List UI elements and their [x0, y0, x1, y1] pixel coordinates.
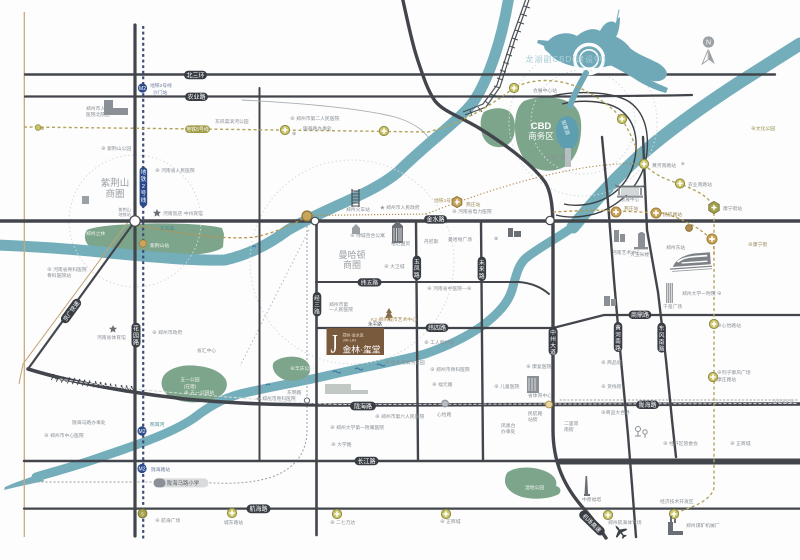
- svg-text:⊕ 康复医院: ⊕ 康复医院: [526, 363, 552, 370]
- svg-text:⊕ 郑州市第二人民医院: ⊕ 郑州市第二人民医院: [290, 115, 340, 122]
- svg-text:地铁站: 地铁站: [118, 211, 131, 218]
- svg-text:⊕ 工人新村站: ⊕ 工人新村站: [424, 339, 454, 346]
- svg-text:金林·玺堂: 金林·玺堂: [342, 343, 380, 354]
- svg-text:长江路: 长江路: [357, 457, 375, 465]
- svg-text:河南饭店·中州宾馆: 河南饭店·中州宾馆: [163, 210, 203, 217]
- svg-text:郑州市人民: 郑州市人民: [86, 105, 110, 112]
- svg-text:M2: M2: [139, 86, 146, 92]
- svg-text:⊕ 商品城: ⊕ 商品城: [601, 359, 622, 366]
- svg-text:地铁2号线: 地铁2号线: [150, 82, 172, 89]
- svg-text:⊕ 河南省骨科医院: ⊕ 河南省骨科医院: [47, 266, 87, 273]
- svg-text:地铁1号线: 地铁1号线: [434, 197, 456, 204]
- svg-text:熊耳河: 熊耳河: [150, 421, 165, 428]
- svg-text:⊕ 经开区管委会: ⊕ 经开区管委会: [663, 440, 698, 447]
- svg-text:⊕商品大世界: ⊕商品大世界: [601, 409, 630, 416]
- svg-text:郑州市第: 郑州市第: [329, 301, 348, 308]
- svg-text:东风渠: 东风渠: [160, 225, 175, 232]
- svg-text:⊕ 五一公园站: ⊕ 五一公园站: [184, 389, 214, 396]
- svg-text:M2: M2: [139, 467, 146, 473]
- svg-text:城东路站: 城东路站: [224, 519, 243, 526]
- svg-text:· 国基路办事处: · 国基路办事处: [300, 125, 332, 132]
- svg-text:地铁5号线: 地铁5号线: [186, 126, 209, 133]
- svg-text:⊕ 航海广场: ⊕ 航海广场: [155, 517, 181, 524]
- svg-text:K2·郑州城市艺术中心: K2·郑州城市艺术中心: [371, 316, 417, 323]
- svg-text:⊕列子御风广场: ⊕列子御风广场: [717, 369, 751, 376]
- svg-text:省汇中心: 省汇中心: [197, 347, 216, 354]
- svg-text:东风南路: 东风南路: [659, 324, 665, 352]
- svg-text:经三路: 经三路: [314, 294, 320, 316]
- svg-text:★ 郑州市人民政府: ★ 郑州市人民政府: [380, 204, 420, 211]
- svg-text:一人民医院: 一人民医院: [329, 306, 353, 313]
- svg-text:大玉米楼: 大玉米楼: [630, 251, 649, 258]
- svg-text:⊕ 正商城: ⊕ 正商城: [440, 518, 461, 525]
- svg-text:CBD商务区: CBD商务区: [528, 121, 554, 141]
- svg-text:省体育中心: 省体育中心: [528, 392, 552, 399]
- svg-text:会展中心站: 会展中心站: [533, 87, 557, 94]
- svg-text:郑州航海体育场: 郑州航海体育场: [608, 519, 642, 526]
- svg-text:曼哈顿广场: 曼哈顿广场: [448, 236, 472, 243]
- svg-text:⊕ 河南省人民医院: ⊕ 河南省人民医院: [155, 167, 195, 174]
- svg-text:郑州火车站: 郑州火车站: [346, 206, 370, 213]
- svg-text:中州大道: 中州大道: [550, 328, 556, 356]
- svg-text:站街: 站街: [528, 416, 538, 423]
- svg-text:⊕丰庆公园: ⊕丰庆公园: [290, 365, 314, 372]
- svg-text:⊕ 郑州市骨科医院: ⊕ 郑州市骨科医院: [430, 366, 470, 373]
- svg-text:龙湖副CBD(建设中): 龙湖副CBD(建设中): [525, 54, 606, 64]
- svg-text:航海路: 航海路: [249, 505, 267, 513]
- svg-text:康庄路站: 康庄路站: [717, 376, 736, 383]
- svg-text:陇海路: 陇海路: [638, 401, 656, 409]
- svg-text:⊕ 郑州市第六人民医院: ⊕ 郑州市第六人民医院: [375, 413, 425, 420]
- svg-text:纬五路: 纬五路: [361, 279, 379, 287]
- svg-text:陇海路站: 陇海路站: [151, 466, 170, 473]
- svg-text:陇海马路小学: 陇海马路小学: [167, 479, 200, 487]
- svg-text:经济技术开发区: 经济技术开发区: [660, 498, 694, 505]
- svg-text:北三环: 北三环: [186, 71, 204, 79]
- svg-text:黄河南路站: 黄河南路站: [652, 162, 676, 169]
- svg-text:⊕ 郑州市中心医院: ⊕ 郑州市中心医院: [44, 432, 84, 439]
- svg-text:⊕ 郑州市政府: ⊕ 郑州市政府: [152, 329, 182, 336]
- svg-text:⊕ 儿童医院: ⊕ 儿童医院: [494, 383, 520, 390]
- svg-text:⊕: ⊕: [494, 236, 498, 242]
- svg-text:康宁街站: 康宁街站: [723, 205, 742, 212]
- svg-text:陇海路: 陇海路: [354, 402, 372, 410]
- svg-text:中原福塔: 中原福塔: [582, 496, 601, 503]
- svg-text:花园路: 花园路: [133, 325, 139, 347]
- svg-text:⊕: ⊕: [40, 126, 44, 132]
- svg-text:⊕ 正商城: ⊕ 正商城: [730, 440, 751, 447]
- svg-text:郑州之林: 郑州之林: [86, 230, 105, 237]
- svg-text:(在建): (在建): [184, 383, 197, 390]
- svg-text:⊕文化公园: ⊕文化公园: [751, 125, 775, 132]
- svg-text:⊕ 紫荆山公园: ⊕ 紫荆山公园: [101, 145, 131, 152]
- svg-text:N: N: [706, 40, 711, 47]
- svg-text:⊕ 河南省中医院—⊕: ⊕ 河南省中医院—⊕: [427, 285, 472, 292]
- svg-text:千玺广场: 千玺广场: [663, 303, 682, 310]
- svg-text:陇海马路办事处: 陇海马路办事处: [72, 419, 106, 426]
- svg-text:⊕ 大学路: ⊕ 大学路: [331, 441, 352, 448]
- svg-text:金水路: 金水路: [426, 216, 444, 224]
- svg-text:二里岗: 二里岗: [564, 420, 579, 427]
- svg-text:⊕ 金水河滨河公园: ⊕ 金水河滨河公园: [385, 359, 425, 366]
- svg-text:五一公园: 五一公园: [180, 377, 199, 383]
- svg-text:⊕: ⊕: [292, 131, 296, 137]
- svg-text:未来路: 未来路: [479, 258, 485, 280]
- svg-text:郑州大学一附院 ⊕: 郑州大学一附院 ⊕: [682, 290, 722, 297]
- svg-text:M2: M2: [139, 429, 146, 435]
- svg-text:玉凤路: 玉凤路: [414, 258, 420, 279]
- svg-text:东风渠滨河公园: 东风渠滨河公园: [215, 118, 249, 125]
- svg-text:民航路站: 民航路站: [663, 211, 682, 218]
- svg-text:⊕: ⊕: [681, 161, 685, 166]
- svg-text:⊕ 绿城百合公寓: ⊕ 绿城百合公寓: [350, 232, 385, 239]
- svg-text:⊕康宁街: ⊕康宁街: [748, 241, 767, 248]
- svg-text:裕达国贸: 裕达国贸: [391, 240, 410, 247]
- svg-text:沙门站: 沙门站: [153, 89, 168, 96]
- svg-text:⊕ 郑州大学第一附属医院: ⊕ 郑州大学第一附属医院: [330, 424, 384, 431]
- svg-text:陇海快速路: 陇海快速路: [772, 398, 795, 405]
- svg-text:郑州煤矿机械厂: 郑州煤矿机械厂: [686, 522, 720, 529]
- svg-text:紫荆山站: 紫荆山站: [150, 242, 169, 249]
- svg-text:医院北院区: 医院北院区: [86, 111, 110, 118]
- svg-text:⊕ 二七万达: ⊕ 二七万达: [330, 519, 356, 526]
- svg-text:会展中心: 会展中心: [621, 196, 640, 203]
- svg-text:纬四路: 纬四路: [428, 324, 446, 332]
- svg-text:东明路: 东明路: [287, 389, 302, 396]
- svg-text:黄河南路: 黄河南路: [615, 324, 621, 352]
- svg-text:河南省体育馆: 河南省体育馆: [97, 334, 126, 341]
- svg-text:⊕ 河南省电力医院: ⊕ 河南省电力医院: [452, 208, 492, 215]
- svg-text:JIN LIN: JIN LIN: [343, 338, 356, 343]
- svg-text:丹尼斯: 丹尼斯: [424, 238, 439, 245]
- svg-text:农业路: 农业路: [187, 93, 205, 101]
- svg-text:郑州东站: 郑州东站: [666, 244, 685, 251]
- svg-text:★ 郑州市骨科医院: ★ 郑州市骨科医院: [256, 395, 296, 402]
- svg-text:农业南路站: 农业南路站: [688, 181, 712, 188]
- svg-text:办事处: 办事处: [501, 428, 516, 435]
- svg-text:骨科医院站: 骨科医院站: [47, 272, 71, 279]
- svg-text:凤凰台: 凤凰台: [501, 422, 516, 429]
- svg-text:南街: 南街: [564, 426, 574, 433]
- svg-text:商鼎路: 商鼎路: [631, 311, 649, 319]
- svg-text:心怡路: 心怡路: [437, 411, 452, 418]
- svg-text:J: J: [331, 330, 338, 359]
- svg-text:⊕ 福元路: ⊕ 福元路: [432, 381, 453, 388]
- svg-text:⊕ 货栈街: ⊕ 货栈街: [601, 383, 622, 390]
- svg-text:⊕ 大卫城: ⊕ 大卫城: [384, 263, 405, 270]
- svg-text:湿地公园: 湿地公园: [525, 484, 544, 491]
- svg-text:民航路: 民航路: [528, 410, 543, 417]
- svg-text:燕庄站: 燕庄站: [466, 201, 481, 208]
- svg-text:燕庄站: 燕庄站: [624, 205, 639, 212]
- svg-text:千玺广场: 千玺广场: [546, 154, 565, 161]
- svg-text:⊕心怡路站: ⊕心怡路站: [717, 322, 741, 329]
